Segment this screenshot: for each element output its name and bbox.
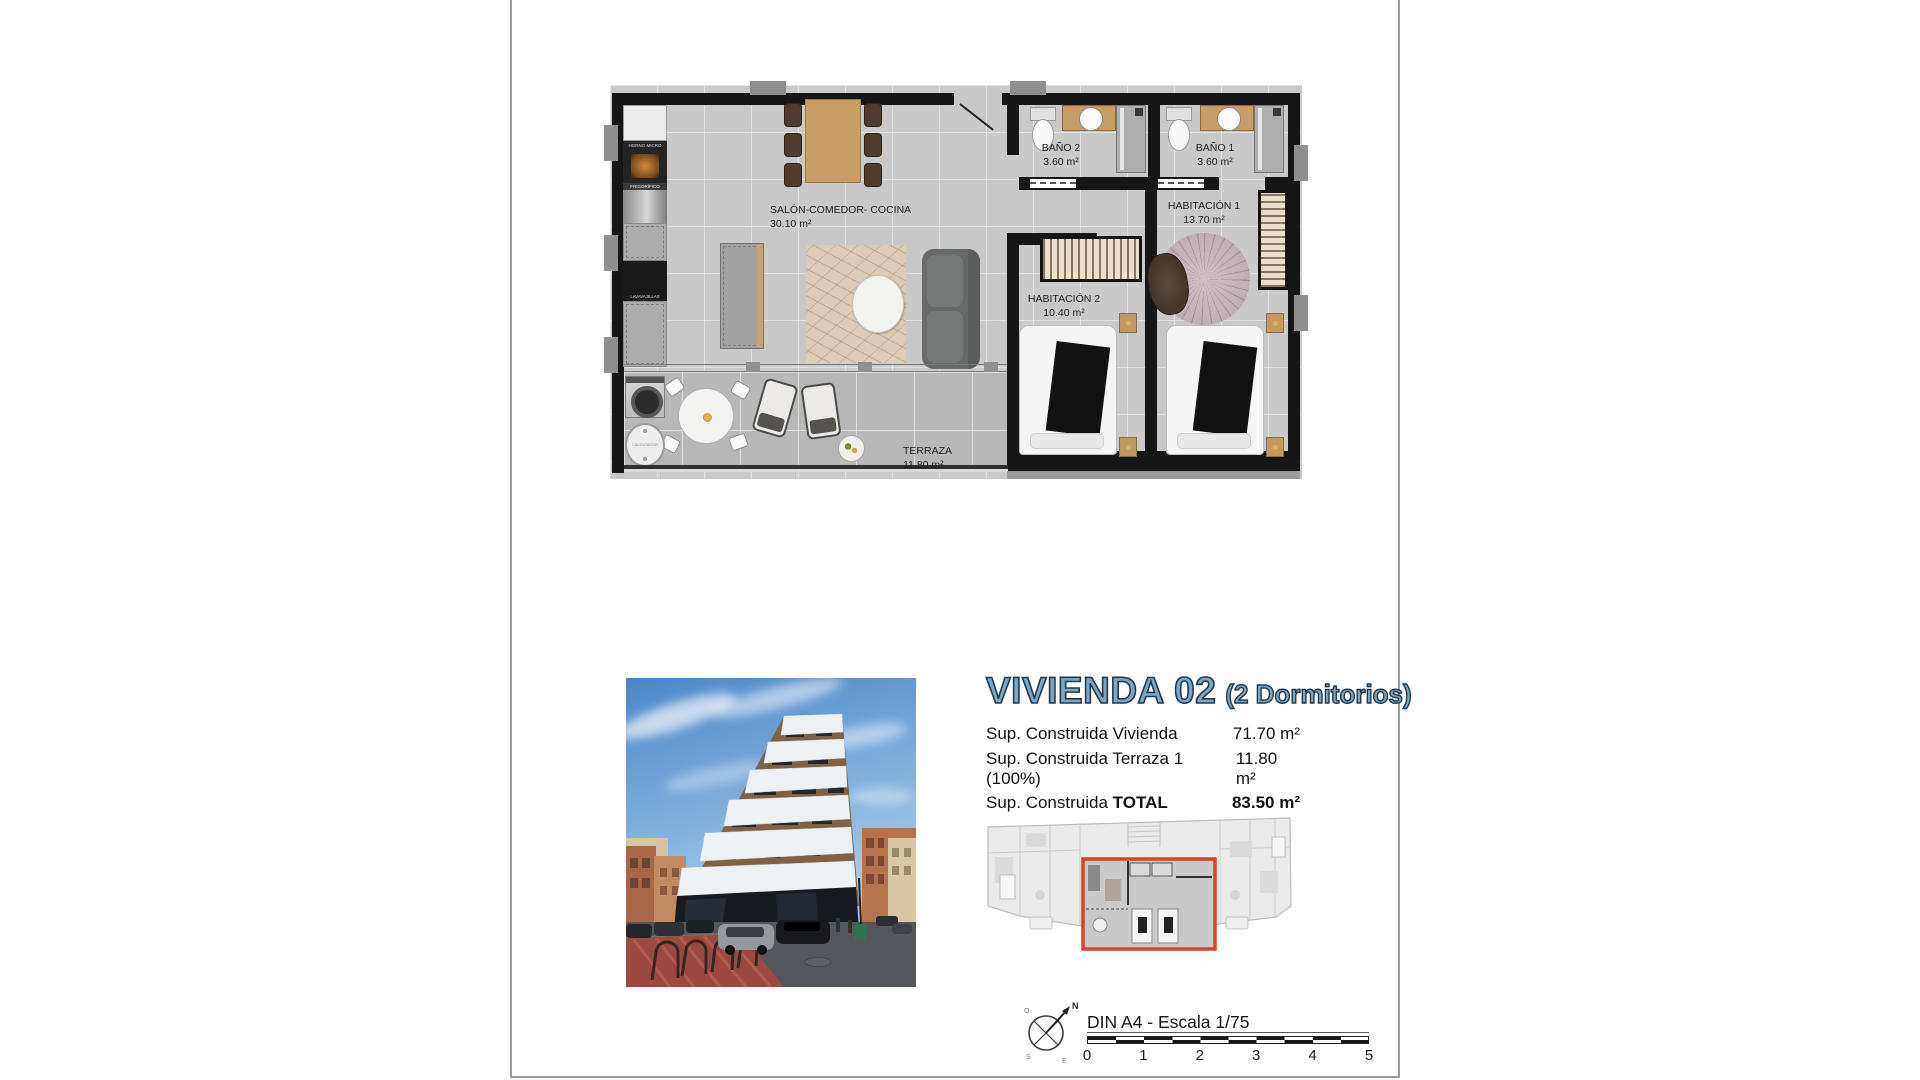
unit-details: VIVIENDA 02(2 Dormitorios) Sup. Construi… [986,670,1300,818]
sliding-door-bath2 [1030,179,1076,188]
pilaster [604,235,618,271]
dining-table [805,99,861,183]
scale-tick: 4 [1308,1047,1316,1064]
scale-tick: 3 [1252,1047,1260,1064]
coffee-table [852,275,904,333]
pilaster [604,125,618,161]
nightstand [1266,437,1284,457]
scale-tick: 5 [1365,1047,1373,1064]
plant-table [838,435,865,462]
water-heater-label: CALENTADOR [632,443,658,447]
building-photo [626,678,916,987]
floor-plan: HORNO MICRO FRIGORÍFICO LAVAVAJILLAS CAL… [610,85,1302,487]
sliding-door-bath1 [1158,179,1204,188]
room-label-habitacion1: HABITACIÓN 1 13.70 m² [1144,200,1264,227]
dining-chair [864,133,882,157]
dining-chair [784,133,802,157]
washbasin [1062,105,1116,131]
scale-label: DIN A4 - Escala 1/75 [1087,1012,1249,1033]
pilaster [1010,81,1046,95]
surface-row: Sup. Construida Terraza 1 (100%) 11.80 m… [986,749,1300,789]
room-label-terraza: TERRAZA 11.80 m² [903,445,952,472]
washbasin [1200,105,1254,131]
surface-value: 83.50 m² [1232,793,1300,813]
nightstand [1119,437,1137,457]
entry-door-leaf [959,103,993,130]
surface-value: 71.70 m² [1233,724,1300,744]
key-plan [980,813,1298,955]
surface-label: Sup. Construida Vivienda [986,724,1178,744]
bed-bedroom2 [1019,325,1117,455]
scale-tick: 2 [1196,1047,1204,1064]
surface-value: 11.80 m² [1236,749,1300,789]
scale-tick: 1 [1139,1047,1147,1064]
surface-table: Sup. Construida Vivienda 71.70 m² Sup. C… [986,724,1300,813]
oven-microwave: HORNO MICRO [623,141,667,183]
sofa [922,249,980,369]
page-border-left [510,0,512,1078]
mask [610,479,1302,489]
tv-cabinet [720,243,764,349]
lounge-chair [800,382,841,440]
dining-chair [864,163,882,187]
room-label-habitacion2: HABITACIÓN 2 10.40 m² [1004,293,1124,320]
terrace-table [678,388,734,444]
washing-machine [625,376,665,418]
kitchen-cabinet [623,105,667,141]
surface-label: Sup. Construida Terraza 1 (100%) [986,749,1236,789]
pilaster [1294,145,1308,181]
scale-tick: 0 [1083,1047,1091,1064]
oven-label: HORNO MICRO [629,143,662,148]
scale-rule-line [1087,1032,1369,1033]
dishwasher-label: LAVAVAJILLAS [623,294,667,299]
fridge-label: FRIGORÍFICO [623,183,667,190]
room-label-bano1: BAÑO 1 3.60 m² [1160,142,1270,169]
room-label-salon: SALÓN-COMEDOR- COCINA 30.10 m² [770,204,911,231]
wardrobe-bedroom2 [1040,236,1142,282]
water-heater: CALENTADOR [625,423,665,467]
page-border-right [1398,0,1400,1078]
svg-text:O: O [1024,1008,1030,1015]
wall [1148,103,1160,183]
surface-row: Sup. Construida Vivienda 71.70 m² [986,724,1300,744]
page-border-bottom [510,1076,1400,1078]
dining-chair [784,163,802,187]
wall [1007,233,1019,473]
glass-sliding-wall [624,364,1007,372]
fridge: FRIGORÍFICO [623,183,667,223]
surface-label: Sup. Construida TOTAL [986,793,1168,813]
kitchen-counter [623,223,667,261]
svg-text:N: N [1072,1001,1079,1011]
shower [1116,105,1146,173]
unit-title: VIVIENDA 02 [986,670,1216,711]
pilaster [604,337,618,373]
nightstand [1266,313,1284,333]
svg-text:S: S [1026,1054,1031,1061]
wall [1145,190,1157,473]
surface-row-total: Sup. Construida TOTAL 83.50 m² [986,793,1300,813]
unit-subtitle: (2 Dormitorios) [1225,679,1411,709]
dishwasher: LAVAVAJILLAS [623,261,667,301]
kitchen-counter [623,301,667,367]
dining-chair [864,103,882,127]
svg-text:E: E [1062,1058,1067,1065]
exterior-band [1007,471,1300,479]
compass-icon: N O S E [1004,995,1088,1073]
scale-bar [1087,1036,1369,1044]
dining-chair [784,103,802,127]
scale-ticks: 0 1 2 3 4 5 [1087,1047,1369,1063]
pilaster [750,81,786,95]
bed-bedroom1 [1166,325,1264,455]
pilaster [1294,295,1308,331]
unit-title-line: VIVIENDA 02(2 Dormitorios) [986,670,1300,712]
room-label-bano2: BAÑO 2 3.60 m² [1006,142,1116,169]
